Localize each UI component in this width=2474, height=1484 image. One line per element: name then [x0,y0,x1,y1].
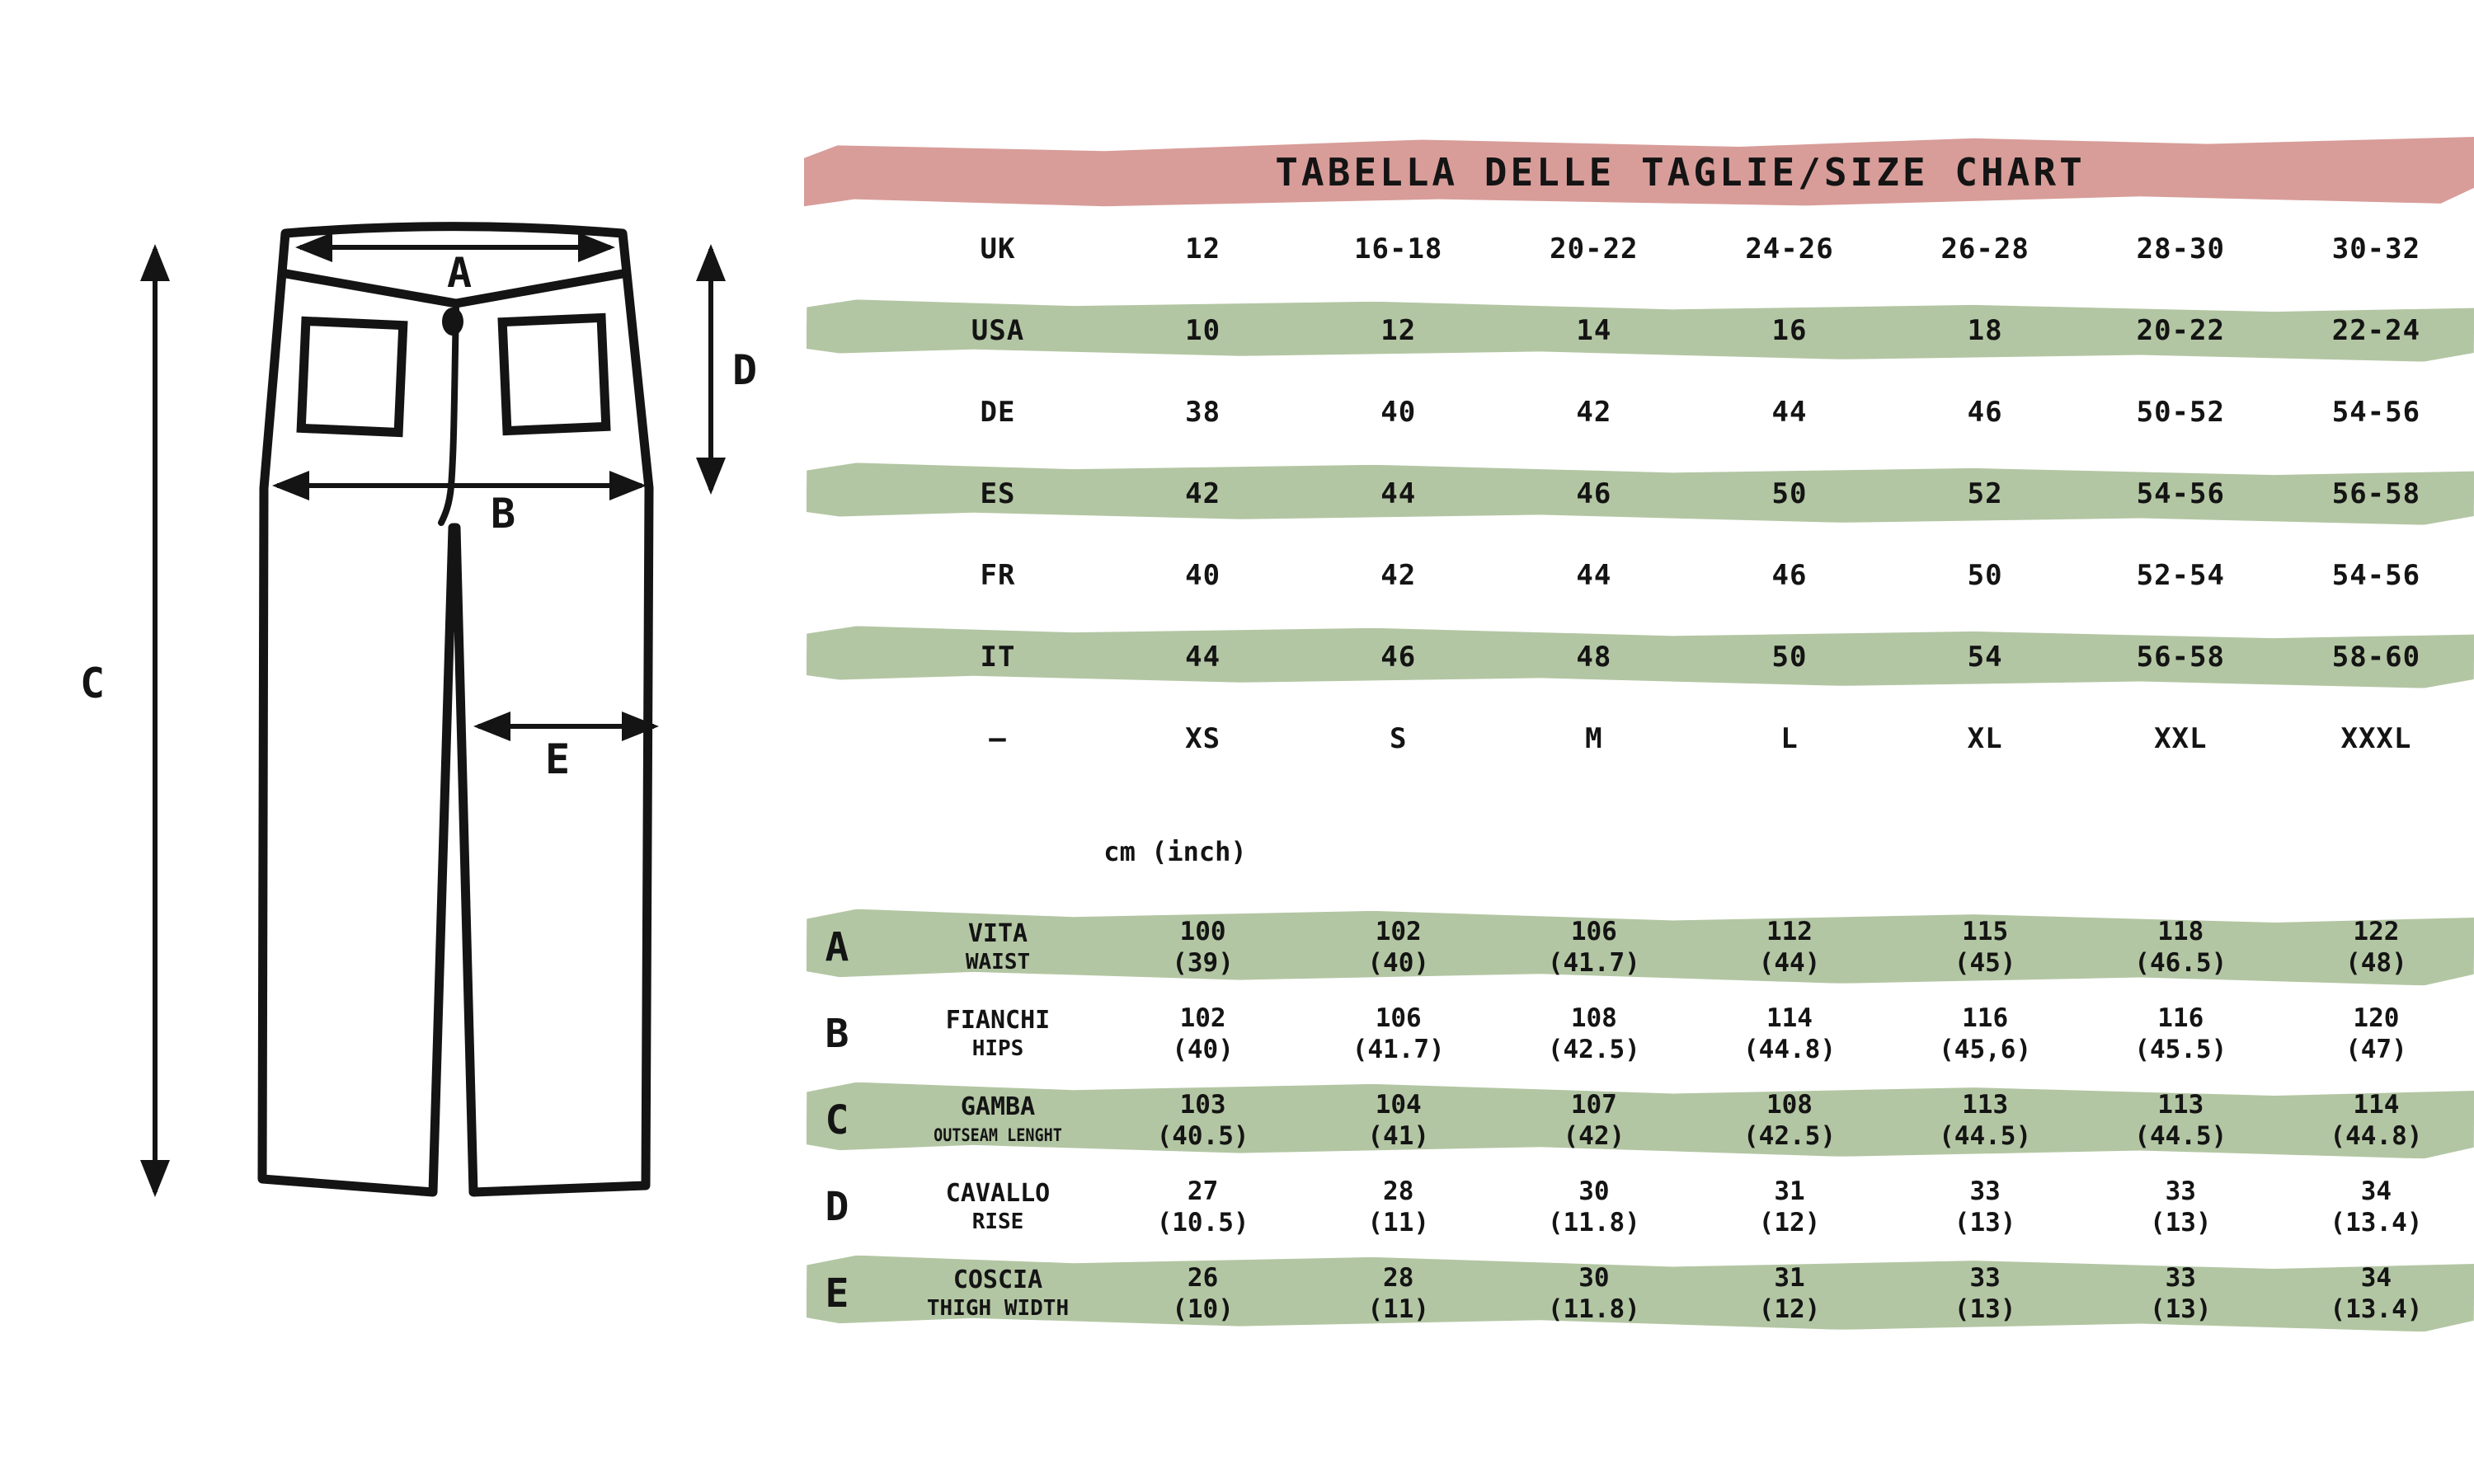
value-inch: (42.5) [1496,1034,1691,1065]
page-title: TABELLA DELLE TAGLIE/SIZE CHART [1275,150,2086,195]
size-region-label: ES [891,477,1105,510]
size-value: XXL [2083,722,2279,755]
value-cm: 27 [1105,1176,1300,1207]
measure-value: 102(40) [1300,916,1496,979]
size-value: 44 [1105,641,1300,674]
size-row: UK1216-1820-2224-2626-2828-3030-32 [783,208,2474,289]
value-inch: (11.8) [1496,1207,1691,1238]
size-region-label: FR [891,559,1105,592]
size-value: 46 [1300,641,1496,674]
value-inch: (44.8) [1691,1034,1887,1065]
size-value: 44 [1300,477,1496,510]
value-inch: (39) [1105,947,1300,979]
measure-value: 30(11.8) [1496,1262,1691,1325]
measure-value: 100(39) [1105,916,1300,979]
measure-label-english: HIPS [891,1036,1105,1062]
value-cm: 122 [2279,916,2474,947]
value-cm: 26 [1105,1262,1300,1294]
measure-letter: B [783,1011,891,1057]
measure-label-italian: FIANCHI [891,1006,1105,1036]
value-inch: (13) [1888,1294,2083,1325]
measure-label-italian: VITA [891,919,1105,949]
unit-label: cm (inch) [1068,836,1282,867]
value-cm: 104 [1300,1089,1496,1120]
value-inch: (11.8) [1496,1294,1691,1325]
value-cm: 115 [1888,916,2083,947]
value-cm: 30 [1496,1176,1691,1207]
size-value: 38 [1105,396,1300,429]
size-value: 46 [1496,477,1691,510]
measure-value: 34(13.4) [2279,1176,2474,1238]
size-value: 50 [1888,559,2083,592]
measure-value: 112(44) [1691,916,1887,979]
size-chart-page: A B C D E TABELLA DELLE TAGLIE/SIZE CHAR… [0,0,2474,1484]
value-cm: 33 [2083,1262,2279,1294]
value-inch: (12) [1691,1294,1887,1325]
value-cm: 33 [1888,1176,2083,1207]
diagram-label-a: A [447,249,472,297]
measure-value: 115(45) [1888,916,2083,979]
size-value: 16 [1691,314,1887,347]
measure-label: COSCIATHIGH WIDTH [891,1266,1105,1322]
value-cm: 112 [1691,916,1887,947]
size-value: 42 [1105,477,1300,510]
size-value: 46 [1691,559,1887,592]
measure-value: 114(44.8) [1691,1003,1887,1065]
measure-value: 106(41.7) [1496,916,1691,979]
left-pocket [301,321,403,432]
measure-value: 120(47) [2279,1003,2474,1065]
size-value: 44 [1691,396,1887,429]
size-value: 42 [1300,559,1496,592]
value-cm: 33 [1888,1262,2083,1294]
measure-label: GAMBAOUTSEAM LENGHT [891,1092,1105,1148]
measure-value: 26(10) [1105,1262,1300,1325]
size-value: S [1300,722,1496,755]
size-value: 16-18 [1300,232,1496,265]
diagram-label-d: D [732,346,757,394]
pants-diagram: A B C D E [0,0,825,1484]
fly-line [441,308,456,523]
size-value: 52-54 [2083,559,2279,592]
size-value: XXXL [2279,722,2474,755]
size-value: 12 [1300,314,1496,347]
button-dot [442,308,463,336]
size-row: IT444648505456-5858-60 [783,616,2474,697]
measure-value: 114(44.8) [2279,1089,2474,1152]
measure-value: 106(41.7) [1300,1003,1496,1065]
measure-letter: A [783,924,891,970]
value-inch: (46.5) [2083,947,2279,979]
value-cm: 107 [1496,1089,1691,1120]
measure-row-e: ECOSCIATHIGH WIDTH26(10)28(11)30(11.8)31… [783,1250,2474,1336]
measure-row-c: CGAMBAOUTSEAM LENGHT103(40.5)104(41)107(… [783,1077,2474,1163]
size-value: 50 [1691,641,1887,674]
size-row: FR404244465052-5454-56 [783,534,2474,616]
value-inch: (40) [1105,1034,1300,1065]
value-inch: (42) [1496,1120,1691,1152]
value-inch: (44.5) [2083,1120,2279,1152]
size-value: 50 [1691,477,1887,510]
value-inch: (10) [1105,1294,1300,1325]
measure-value: 118(46.5) [2083,916,2279,979]
value-inch: (12) [1691,1207,1887,1238]
size-value: 40 [1300,396,1496,429]
size-value: 54 [1888,641,2083,674]
measure-letter: E [783,1270,891,1317]
measure-value: 34(13.4) [2279,1262,2474,1325]
measure-value: 103(40.5) [1105,1089,1300,1152]
measure-row-d: DCAVALLORISE27(10.5)28(11)30(11.8)31(12)… [783,1163,2474,1250]
size-value: 26-28 [1888,232,2083,265]
measure-letter: C [783,1097,891,1144]
measure-value: 104(41) [1300,1089,1496,1152]
measure-label: VITAWAIST [891,919,1105,975]
size-region-label: – [891,722,1105,755]
value-inch: (13) [1888,1207,2083,1238]
measure-value: 122(48) [2279,916,2474,979]
measure-value: 116(45,6) [1888,1003,2083,1065]
value-cm: 113 [2083,1089,2279,1120]
measure-label-english: WAIST [891,949,1105,975]
size-value: XS [1105,722,1300,755]
size-region-label: IT [891,641,1105,674]
value-inch: (40) [1300,947,1496,979]
size-value: 22-24 [2279,314,2474,347]
measure-value: 108(42.5) [1496,1003,1691,1065]
size-value: 48 [1496,641,1691,674]
diagram-label-e: E [545,735,570,783]
value-cm: 108 [1496,1003,1691,1034]
size-value: 52 [1888,477,2083,510]
value-inch: (47) [2279,1034,2474,1065]
diagram-label-b: B [491,490,515,538]
size-value: 56-58 [2083,641,2279,674]
measure-value: 113(44.5) [1888,1089,2083,1152]
size-value: 46 [1888,396,2083,429]
measure-label-english: RISE [891,1209,1105,1235]
value-inch: (45.5) [2083,1034,2279,1065]
measure-label: FIANCHIHIPS [891,1006,1105,1062]
value-cm: 120 [2279,1003,2474,1034]
measure-value: 33(13) [2083,1262,2279,1325]
value-cm: 33 [2083,1176,2279,1207]
value-inch: (44) [1691,947,1887,979]
value-inch: (45,6) [1888,1034,2083,1065]
measure-label-english: OUTSEAM LENGHT [904,1122,1093,1148]
measure-label: CAVALLORISE [891,1179,1105,1235]
value-cm: 34 [2279,1176,2474,1207]
value-inch: (41.7) [1496,947,1691,979]
value-cm: 28 [1300,1262,1496,1294]
measure-value: 31(12) [1691,1176,1887,1238]
size-value: 58-60 [2279,641,2474,674]
measure-value: 31(12) [1691,1262,1887,1325]
measure-value: 102(40) [1105,1003,1300,1065]
value-inch: (11) [1300,1294,1496,1325]
value-inch: (13) [2083,1207,2279,1238]
measure-value: 30(11.8) [1496,1176,1691,1238]
value-inch: (44.8) [2279,1120,2474,1152]
measure-value: 33(13) [2083,1176,2279,1238]
value-inch: (41) [1300,1120,1496,1152]
size-value: 42 [1496,396,1691,429]
value-inch: (45) [1888,947,2083,979]
value-cm: 31 [1691,1176,1887,1207]
measure-value: 107(42) [1496,1089,1691,1152]
value-cm: 108 [1691,1089,1887,1120]
measurement-table: AVITAWAIST100(39)102(40)106(41.7)112(44)… [783,904,2474,1336]
value-cm: 100 [1105,916,1300,947]
size-region-label: UK [891,232,1105,265]
measure-label-italian: CAVALLO [891,1179,1105,1209]
value-inch: (42.5) [1691,1120,1887,1152]
measure-row-b: BFIANCHIHIPS102(40)106(41.7)108(42.5)114… [783,990,2474,1077]
size-value: 14 [1496,314,1691,347]
size-row: –XSSMLXLXXLXXXL [783,697,2474,779]
size-value: 54-56 [2279,559,2474,592]
measure-label-english: THIGH WIDTH [891,1295,1105,1322]
size-region-label: DE [891,396,1105,429]
size-value: 18 [1888,314,2083,347]
value-inch: (44.5) [1888,1120,2083,1152]
value-cm: 102 [1105,1003,1300,1034]
value-inch: (11) [1300,1207,1496,1238]
size-value: 20-22 [2083,314,2279,347]
measure-letter: D [783,1184,891,1230]
value-cm: 114 [1691,1003,1887,1034]
right-pocket [502,317,606,430]
measure-value: 33(13) [1888,1176,2083,1238]
size-chart: TABELLA DELLE TAGLIE/SIZE CHART UK1216-1… [783,0,2474,1484]
size-value: L [1691,722,1887,755]
value-cm: 118 [2083,916,2279,947]
size-value: 44 [1496,559,1691,592]
measure-label-italian: COSCIA [891,1266,1105,1295]
size-value: 12 [1105,232,1300,265]
value-cm: 106 [1300,1003,1496,1034]
size-value: 56-58 [2279,477,2474,510]
measure-value: 28(11) [1300,1176,1496,1238]
measure-value: 28(11) [1300,1262,1496,1325]
value-inch: (13) [2083,1294,2279,1325]
size-row: ES424446505254-5656-58 [783,453,2474,534]
value-cm: 30 [1496,1262,1691,1294]
measure-value: 116(45.5) [2083,1003,2279,1065]
size-value: XL [1888,722,2083,755]
size-value: 24-26 [1691,232,1887,265]
value-cm: 113 [1888,1089,2083,1120]
measure-label-italian: GAMBA [891,1092,1105,1122]
measure-row-a: AVITAWAIST100(39)102(40)106(41.7)112(44)… [783,904,2474,990]
value-cm: 116 [2083,1003,2279,1034]
value-cm: 103 [1105,1089,1300,1120]
value-inch: (40.5) [1105,1120,1300,1152]
measure-value: 108(42.5) [1691,1089,1887,1152]
value-cm: 106 [1496,916,1691,947]
measure-value: 27(10.5) [1105,1176,1300,1238]
title-banner: TABELLA DELLE TAGLIE/SIZE CHART [804,137,2474,208]
size-value: 30-32 [2279,232,2474,265]
size-value: 54-56 [2279,396,2474,429]
size-row: DE384042444650-5254-56 [783,371,2474,453]
value-cm: 114 [2279,1089,2474,1120]
value-inch: (13.4) [2279,1294,2474,1325]
value-inch: (10.5) [1105,1207,1300,1238]
size-value: 54-56 [2083,477,2279,510]
value-cm: 102 [1300,916,1496,947]
value-inch: (41.7) [1300,1034,1496,1065]
size-value: 28-30 [2083,232,2279,265]
size-value: 40 [1105,559,1300,592]
value-cm: 116 [1888,1003,2083,1034]
size-row: USA101214161820-2222-24 [783,289,2474,371]
value-cm: 34 [2279,1262,2474,1294]
diagram-label-c: C [80,660,105,707]
size-conversion-table: UK1216-1820-2224-2626-2828-3030-32USA101… [783,208,2474,779]
value-inch: (13.4) [2279,1207,2474,1238]
value-cm: 28 [1300,1176,1496,1207]
measure-value: 33(13) [1888,1262,2083,1325]
size-value: 20-22 [1496,232,1691,265]
size-value: 10 [1105,314,1300,347]
size-value: 50-52 [2083,396,2279,429]
pants-drawing-svg: A B C D E [0,0,825,1484]
size-region-label: USA [891,314,1105,347]
value-cm: 31 [1691,1262,1887,1294]
value-inch: (48) [2279,947,2474,979]
size-value: M [1496,722,1691,755]
measure-value: 113(44.5) [2083,1089,2279,1152]
